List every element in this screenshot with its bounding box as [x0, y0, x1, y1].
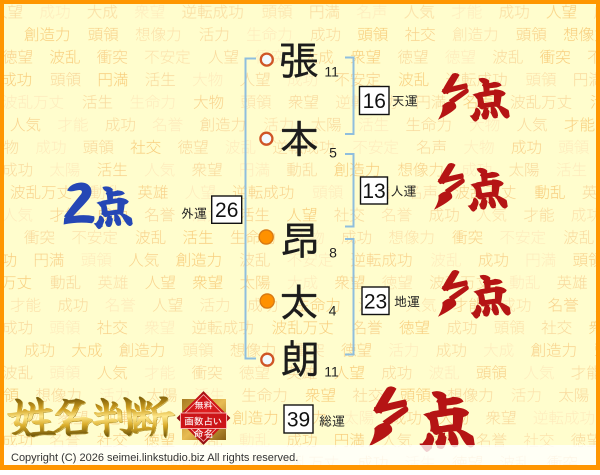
- svg-text:26: 26: [215, 199, 238, 222]
- svg-text:Copyright (C) 2026 seimei.link: Copyright (C) 2026 seimei.linkstudio.biz…: [11, 452, 298, 464]
- svg-text:5: 5: [329, 145, 337, 161]
- svg-text:16: 16: [363, 90, 386, 113]
- svg-text:13: 13: [362, 180, 385, 203]
- svg-text:8: 8: [329, 245, 337, 261]
- svg-text:4: 4: [329, 303, 337, 319]
- svg-text:23: 23: [364, 290, 387, 313]
- svg-text:11: 11: [324, 64, 339, 80]
- svg-text:39: 39: [287, 409, 310, 432]
- svg-text:11: 11: [324, 364, 339, 380]
